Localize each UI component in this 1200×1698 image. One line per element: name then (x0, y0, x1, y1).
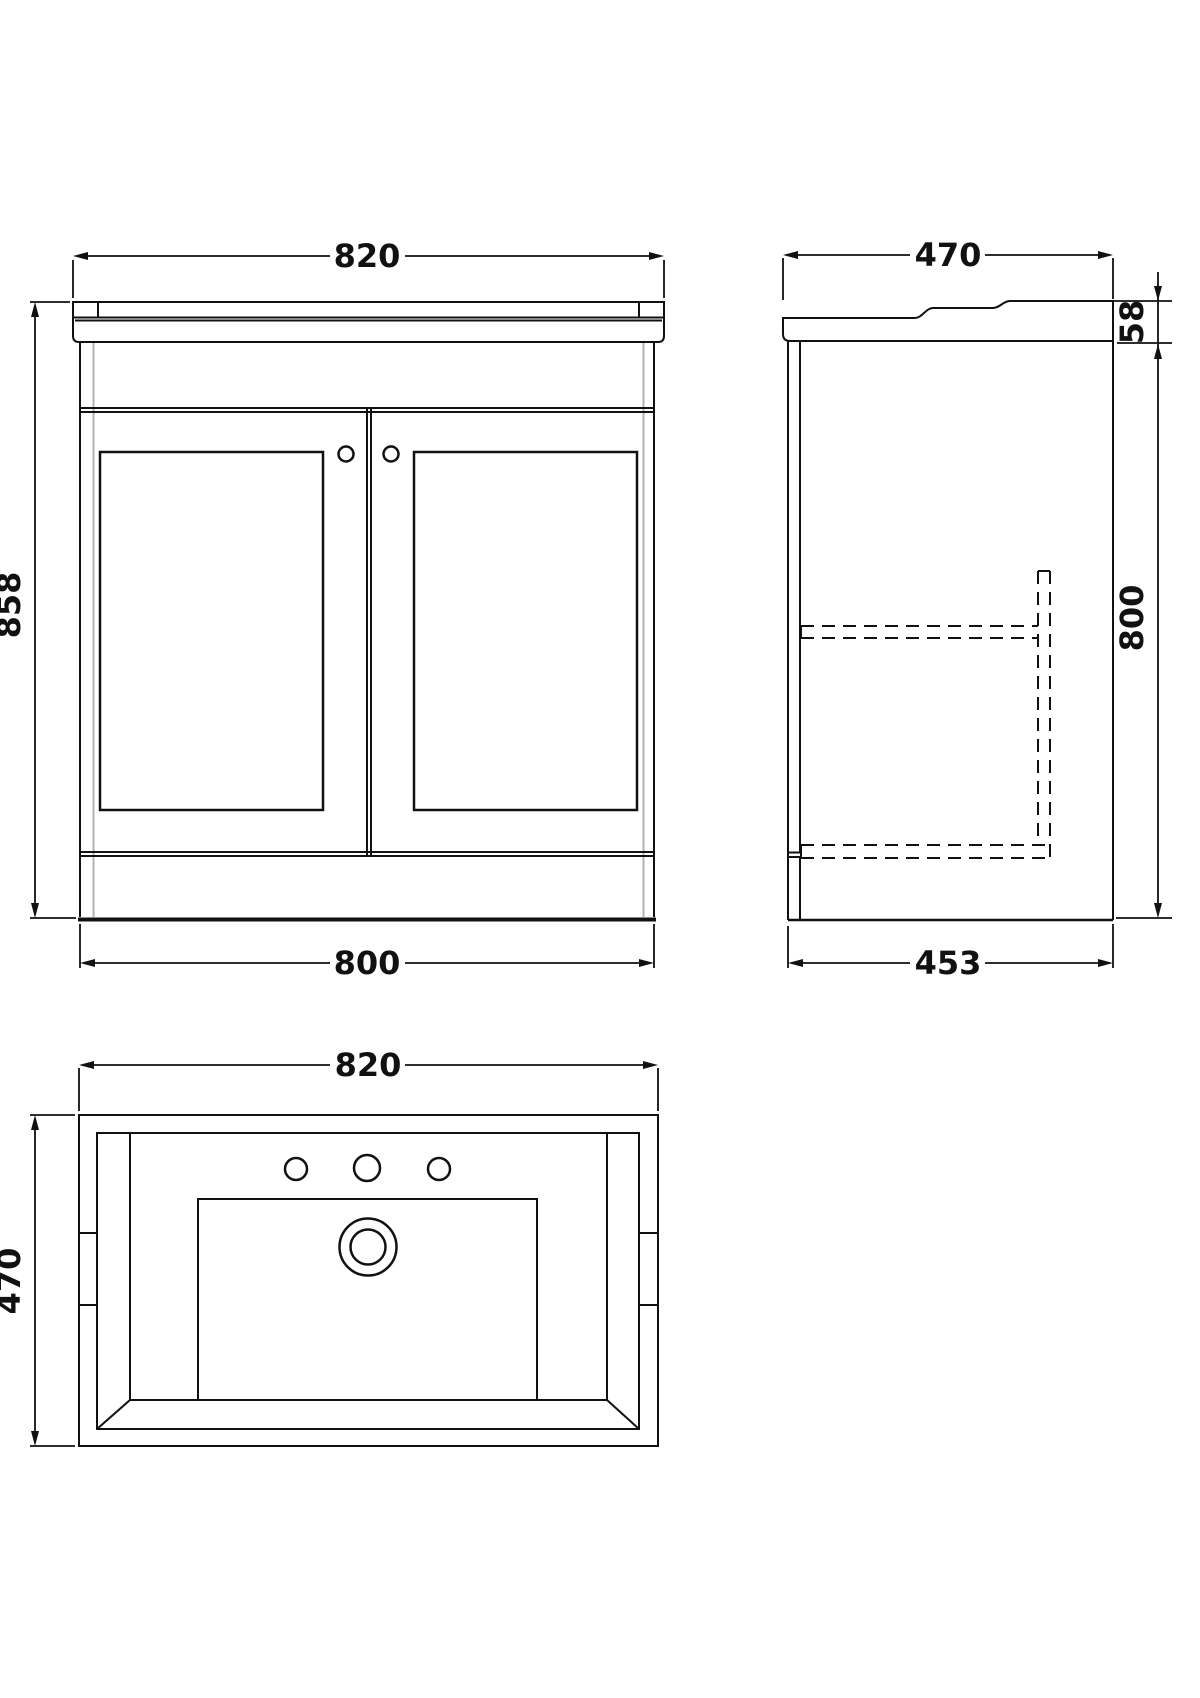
dim-front-width-bottom: 800 (80, 924, 654, 982)
dim-label-plan-width: 820 (335, 1046, 402, 1084)
plan-tap-hole-center (354, 1155, 380, 1181)
dim-label-front-width-top: 820 (334, 237, 401, 275)
side-countertop-profile (783, 301, 1113, 341)
plan-waste-outer-circle (340, 1219, 397, 1276)
dim-label-front-width-bottom: 800 (334, 944, 401, 982)
plan-tap-hole-left (285, 1158, 307, 1180)
dim-side-thickness-and-height: 58 800 (1113, 272, 1172, 918)
dim-front-width-top: 820 (73, 237, 664, 298)
front-countertop-outline (73, 302, 664, 342)
plan-view (79, 1115, 658, 1446)
dim-label-side-depth-top: 470 (915, 236, 982, 274)
side-hidden-lines (801, 571, 1050, 858)
plan-bowl-left-chamfer (97, 1400, 130, 1429)
dim-plan-width: 820 (79, 1046, 658, 1111)
front-view (73, 302, 664, 920)
side-view (783, 301, 1113, 920)
front-left-door-knob (339, 447, 354, 462)
dim-label-plan-depth: 470 (0, 1248, 28, 1315)
vanity-unit-drawing: 820 858 800 470 (0, 0, 1200, 1698)
dim-label-side-thickness: 58 (1113, 300, 1151, 345)
dim-label-side-depth-bottom: 453 (915, 944, 982, 982)
technical-drawing-sheet: 820 858 800 470 (0, 0, 1200, 1698)
plan-basin-outer-rect (79, 1115, 658, 1446)
front-right-door-panel (414, 452, 637, 810)
plan-tap-hole-right (428, 1158, 450, 1180)
dim-label-side-height: 800 (1113, 585, 1151, 652)
dim-side-depth-top: 470 (783, 236, 1113, 300)
dim-front-height: 858 (0, 302, 76, 918)
front-right-door-knob (384, 447, 399, 462)
plan-basin-rim-rect (97, 1133, 639, 1429)
dim-label-front-height: 858 (0, 572, 28, 639)
dim-plan-depth: 470 (0, 1115, 75, 1446)
dim-side-depth-bottom: 453 (788, 924, 1113, 982)
plan-waste-inner-circle (351, 1230, 386, 1265)
dimensions: 820 858 800 470 (0, 236, 1172, 1446)
plan-bowl-right-chamfer (607, 1400, 639, 1429)
front-left-door-panel (100, 452, 323, 810)
